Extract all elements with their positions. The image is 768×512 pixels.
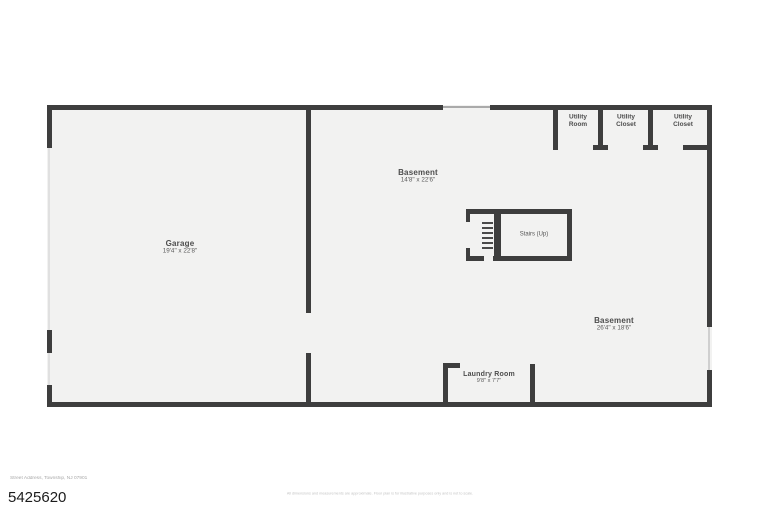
room-label-utility-closet-1: Utility Closet bbox=[610, 114, 641, 129]
laundry-left-wall bbox=[443, 363, 448, 402]
wall-right-lower bbox=[707, 370, 712, 407]
stairs-top-wall bbox=[466, 209, 572, 214]
utility-partition-1 bbox=[598, 105, 603, 150]
room-label-garage: Garage 19'4" x 22'8" bbox=[161, 239, 199, 255]
laundry-left-stub bbox=[443, 363, 460, 368]
stair-tread bbox=[482, 237, 493, 239]
wall-divider-lower bbox=[306, 353, 311, 407]
window-right bbox=[708, 327, 710, 370]
stair-tread bbox=[482, 222, 493, 224]
stairs-right-wall bbox=[567, 214, 572, 261]
room-label-basement-main: Basement 14'8" x 22'6" bbox=[398, 168, 438, 184]
listing-number: 5425620 bbox=[8, 489, 66, 506]
garage-door-line-1 bbox=[48, 148, 50, 330]
wall-left-mid bbox=[47, 330, 52, 353]
disclaimer-text: All dimensions and measurements are appr… bbox=[287, 492, 473, 496]
room-dims: 19'4" x 22'8" bbox=[163, 248, 198, 254]
utility-closet-bottom-wall bbox=[683, 145, 712, 150]
room-label-utility-room: Utility Room bbox=[561, 114, 594, 129]
floorplan-page: Garage 19'4" x 22'8" Basement 14'8" x 22… bbox=[0, 0, 768, 512]
room-dims: 9'8" x 7'7" bbox=[468, 378, 509, 384]
wall-right-upper bbox=[707, 105, 712, 327]
stairs-left-foot bbox=[466, 256, 484, 261]
utility-partition-2 bbox=[648, 105, 653, 150]
room-name: Laundry Room bbox=[463, 371, 515, 378]
room-label-utility-closet-2: Utility Closet bbox=[667, 114, 698, 129]
wall-divider-upper bbox=[306, 105, 311, 313]
room-label-basement-rec: Basement 26'4" x 18'6" bbox=[594, 316, 634, 332]
wall-left-upper bbox=[47, 105, 52, 148]
floor-plan: Garage 19'4" x 22'8" Basement 14'8" x 22… bbox=[0, 0, 768, 512]
stair-tread bbox=[482, 247, 493, 249]
laundry-right-wall bbox=[530, 364, 535, 402]
wall-left-lower bbox=[47, 385, 52, 407]
stair-tread bbox=[482, 227, 493, 229]
floor-area bbox=[47, 105, 712, 407]
stair-tread bbox=[482, 242, 493, 244]
room-name: Basement bbox=[398, 168, 438, 177]
room-label-laundry: Laundry Room 9'8" x 7'7" bbox=[463, 371, 515, 385]
room-dims: 14'8" x 22'6" bbox=[400, 177, 436, 183]
wall-top-left-segment bbox=[47, 105, 443, 110]
address-line: Street Address, Township, NJ 07901 bbox=[10, 476, 87, 481]
room-label-stairs: Stairs (Up) bbox=[520, 231, 548, 237]
utility-partition-2-foot bbox=[643, 145, 658, 150]
utility-partition-1-foot bbox=[593, 145, 608, 150]
utility-room-left-wall bbox=[553, 105, 558, 150]
room-name: Basement bbox=[594, 316, 634, 325]
stairs-mid-wall bbox=[494, 214, 501, 256]
garage-door-line-2 bbox=[48, 353, 50, 385]
room-name: Garage bbox=[161, 239, 199, 248]
stairs-left-stub-top bbox=[466, 214, 470, 222]
wall-bottom bbox=[47, 402, 712, 407]
room-dims: 26'4" x 18'6" bbox=[596, 325, 632, 331]
stairs-bottom-wall bbox=[493, 256, 572, 261]
stair-tread bbox=[482, 232, 493, 234]
window-top bbox=[443, 106, 490, 108]
